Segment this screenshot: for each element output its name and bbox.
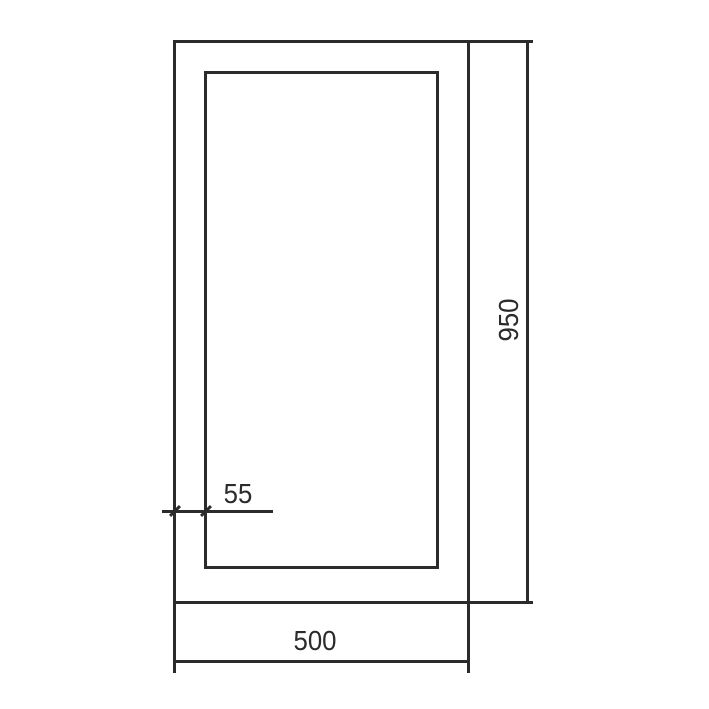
- width-dimension-label: 500: [294, 627, 337, 655]
- width-dimension-line: [173, 660, 470, 663]
- height-dimension-label: 950: [495, 299, 523, 342]
- offset-dimension-line: [162, 510, 273, 513]
- offset-dimension-label: 55: [224, 480, 253, 508]
- height-dim-top-extension-line: [469, 40, 533, 43]
- height-dim-bottom-extension-line: [469, 601, 533, 604]
- height-dimension-line: [526, 41, 529, 604]
- drawing-canvas: 950 500 55: [0, 0, 709, 709]
